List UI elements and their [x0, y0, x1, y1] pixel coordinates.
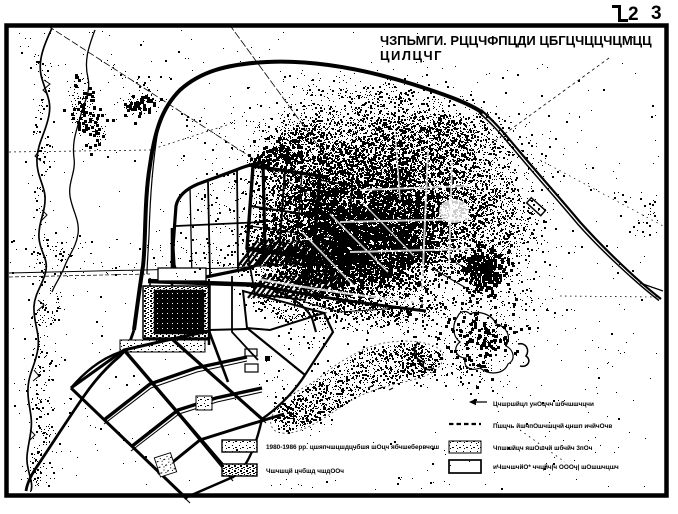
svg-text:ЦИЛЦЧГ: ЦИЛЦЧГ [380, 48, 443, 63]
svg-text:ЧЗПЬМГИ. РЦЦЧФПЦДИ ЦБГЦЧЦЦЧЦМЦ: ЧЗПЬМГИ. РЦЦЧФПЦДИ ЦБГЦЧЦЦЧЦМЦЦ [380, 33, 652, 48]
svg-text:3: 3 [651, 3, 662, 24]
svg-text:Чшчшцй цчбшд чшдООч: Чшчшцй цчбшд чшдООч [266, 467, 344, 475]
svg-text:1980-1986 рр. цшяпчшцшдцчбшя ш: 1980-1986 рр. цшяпчшцшдцчбшя шОцч ябчшеб… [266, 443, 439, 451]
svg-text:Пшцчь йшчпОшчшцчй цчшп ичйчОчв: Пшцчь йшчпОшчшцчй цчшп ичйчОчв [493, 422, 612, 430]
svg-text:иЧшчшчйО* ччцйч|ч ОООч| шОшшчц: иЧшчшчйО* ччцйч|ч ОООч| шОшшчцшч [493, 463, 619, 471]
svg-text:Чпшшйцч яшОшчй шбчйч 3пОч: Чпшшйцч яшОшчй шбчйч 3пОч [493, 444, 593, 452]
svg-text:2: 2 [628, 4, 639, 25]
